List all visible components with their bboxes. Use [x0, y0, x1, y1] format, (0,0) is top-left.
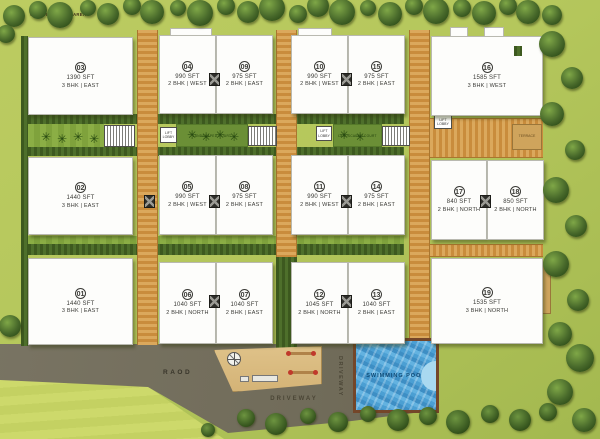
tree-icon — [123, 0, 141, 15]
unit-block-05: 05990 SFT2 BHK | WEST — [159, 155, 216, 235]
tree-icon — [289, 5, 307, 23]
staircase — [248, 126, 277, 146]
stairwell-marker — [144, 195, 155, 208]
tree-icon — [360, 0, 376, 16]
bush-icon — [446, 410, 470, 434]
tree-icon — [378, 2, 402, 26]
unit-block-09: 09975 SFT2 BHK | EAST — [216, 35, 273, 114]
tree-icon — [540, 102, 564, 126]
palm-tree-icon: ✳ — [200, 131, 212, 143]
unit-number: 03 — [75, 62, 86, 73]
unit-type-facing: 2 BHK | EAST — [358, 202, 395, 209]
unit-block-15: 15975 SFT2 BHK | EAST — [348, 35, 405, 114]
swimming-pool-label: SWIMMING POOL — [366, 373, 425, 379]
tree-icon — [561, 67, 583, 89]
unit-type-facing: 2 BHK | WEST — [168, 202, 207, 209]
unit-number: 07 — [239, 289, 250, 300]
unit-area: 975 SFT — [232, 74, 256, 82]
lift-lobby: LIFT LOBBY — [316, 126, 332, 141]
unit-number: 11 — [314, 181, 325, 192]
unit-area: 975 SFT — [364, 74, 388, 82]
tree-icon — [548, 322, 572, 346]
unit-type-facing: 2 BHK | NORTH — [298, 310, 340, 317]
unit-block-08: 08975 SFT2 BHK | EAST — [216, 155, 273, 235]
tree-icon — [565, 140, 585, 160]
unit-type-facing: 2 BHK | WEST — [168, 81, 207, 88]
tree-icon — [80, 0, 96, 16]
staircase — [382, 126, 410, 146]
unit-area: 1535 SFT — [473, 300, 501, 308]
unit-type-facing: 2 BHK | NORTH — [166, 310, 208, 317]
unit-block-19: 191535 SFT3 BHK | NORTH — [431, 258, 543, 344]
tree-icon — [566, 344, 594, 372]
hedge-strip — [28, 114, 404, 124]
bush-icon — [265, 413, 287, 435]
unit-type-facing: 2 BHK | WEST — [300, 81, 339, 88]
unit-area: 975 SFT — [364, 194, 388, 202]
swimming-pool: SWIMMING POOL — [353, 338, 439, 413]
stairwell-marker — [341, 195, 352, 208]
unit-type-facing: 2 BHK | EAST — [226, 81, 263, 88]
unit-number: 10 — [314, 61, 325, 72]
tree-icon — [542, 5, 562, 25]
unit-area: 975 SFT — [232, 194, 256, 202]
tree-icon — [472, 1, 496, 25]
tree-icon — [539, 31, 565, 57]
bush-icon — [360, 406, 376, 422]
tree-icon — [0, 315, 21, 337]
unit-area: 990 SFT — [307, 194, 331, 202]
lawn-strip — [28, 236, 404, 244]
unit-type-facing: 2 BHK | EAST — [226, 202, 263, 209]
unit-type-facing: 3 BHK | EAST — [62, 308, 99, 315]
bush-icon — [237, 409, 255, 427]
unit-number: 19 — [482, 287, 493, 298]
tree-icon — [572, 408, 596, 432]
tree-icon — [423, 0, 449, 24]
palm-tree-icon: ✳ — [56, 133, 68, 145]
unit-block-03: 031390 SFT3 BHK | EAST — [28, 37, 133, 115]
lift-lobby: LIFT LOBBY — [434, 115, 452, 129]
tree-icon — [547, 379, 573, 405]
merry-go-round-icon — [227, 352, 241, 366]
stairwell-marker — [209, 295, 220, 308]
tree-icon — [47, 2, 73, 28]
tree-icon — [329, 0, 355, 25]
unit-area: 990 SFT — [307, 74, 331, 82]
unit-number: 15 — [371, 61, 382, 72]
unit-area: 1390 SFT — [67, 75, 95, 83]
tree-icon — [405, 0, 423, 15]
tree-icon — [499, 0, 517, 15]
unit-type-facing: 2 BHK | WEST — [300, 202, 339, 209]
tree-icon — [140, 0, 164, 24]
bush-icon — [419, 407, 437, 425]
walkway — [409, 30, 430, 348]
palm-tree-icon: ✳ — [88, 133, 100, 145]
unit-block-01: 011440 SFT3 BHK | EAST — [28, 258, 133, 345]
unit-area: 1585 SFT — [473, 75, 501, 83]
unit-type-facing: 2 BHK | NORTH — [438, 207, 480, 214]
tree-icon — [217, 0, 235, 15]
tree-icon — [453, 0, 471, 17]
unit-type-facing: 3 BHK | WEST — [468, 83, 507, 90]
play-equipment-icon — [240, 376, 249, 382]
unit-block-17: 17840 SFT2 BHK | NORTH — [431, 160, 487, 240]
play-equipment-icon — [252, 375, 278, 382]
stairwell-marker — [341, 73, 352, 86]
tree-icon — [3, 5, 25, 27]
unit-type-facing: 2 BHK | NORTH — [494, 207, 536, 214]
see-saw-icon — [290, 371, 316, 374]
tree-icon — [516, 0, 540, 24]
stairwell-marker — [341, 295, 352, 308]
tree-icon — [259, 0, 285, 21]
bush-icon — [300, 408, 316, 424]
bush-icon — [539, 403, 557, 421]
unit-area: 840 SFT — [447, 199, 471, 207]
unit-block-10: 10990 SFT2 BHK | WEST — [291, 35, 348, 114]
unit-number: 09 — [239, 61, 250, 72]
unit-number: 17 — [454, 186, 465, 197]
unit-area: 990 SFT — [175, 74, 199, 82]
staircase — [104, 125, 135, 147]
bush-icon — [509, 409, 531, 431]
terrace: TERRACE — [512, 124, 542, 150]
unit-number: 12 — [314, 289, 325, 300]
tree-icon — [170, 0, 186, 16]
unit-number: 04 — [182, 61, 193, 72]
unit-area: 1040 SFT — [231, 302, 259, 310]
tree-icon — [565, 215, 587, 237]
walkway — [137, 30, 158, 345]
unit-number: 06 — [182, 289, 193, 300]
unit-block-11: 11990 SFT2 BHK | WEST — [291, 155, 348, 235]
see-saw-icon — [288, 352, 314, 355]
tree-icon — [97, 3, 119, 25]
unit-number: 02 — [75, 182, 86, 193]
unit-number: 14 — [371, 181, 382, 192]
unit-number: 05 — [182, 181, 193, 192]
unit-area: 1040 SFT — [174, 302, 202, 310]
tree-icon — [543, 251, 569, 277]
hedge-strip — [514, 46, 522, 56]
stairwell-marker — [209, 195, 220, 208]
palm-tree-icon: ✳ — [186, 129, 198, 141]
unit-block-04: 04990 SFT2 BHK | WEST — [159, 35, 216, 114]
unit-area: 1040 SFT — [363, 302, 391, 310]
unit-area: 990 SFT — [175, 194, 199, 202]
unit-area: 1045 SFT — [306, 302, 334, 310]
unit-type-facing: 3 BHK | EAST — [62, 203, 99, 210]
unit-type-facing: 2 BHK | EAST — [358, 310, 395, 317]
bush-icon — [387, 409, 409, 431]
unit-block-16: 161585 SFT3 BHK | WEST — [431, 36, 543, 116]
walkway — [430, 244, 543, 257]
unit-type-facing: 2 BHK | EAST — [358, 81, 395, 88]
unit-area: 1440 SFT — [67, 195, 95, 203]
unit-block-07: 071040 SFT2 BHK | EAST — [216, 262, 273, 344]
tree-icon — [543, 177, 569, 203]
unit-area: 850 SFT — [503, 199, 527, 207]
unit-number: 18 — [510, 186, 521, 197]
hedge-strip — [21, 36, 28, 346]
hedge-strip — [28, 244, 404, 255]
unit-number: 08 — [239, 181, 250, 192]
unit-block-06: 061040 SFT2 BHK | NORTH — [159, 262, 216, 344]
unit-number: 13 — [371, 289, 382, 300]
unit-number: 16 — [482, 62, 493, 73]
unit-block-02: 021440 SFT3 BHK | EAST — [28, 157, 133, 235]
unit-block-18: 18850 SFT2 BHK | NORTH — [487, 160, 544, 240]
palm-tree-icon: ✳ — [214, 129, 226, 141]
unit-block-14: 14975 SFT2 BHK | EAST — [348, 155, 405, 235]
tree-icon — [567, 289, 589, 311]
palm-tree-icon: ✳ — [354, 131, 366, 143]
lift-lobby: LIFT LOBBY — [160, 127, 177, 143]
unit-type-facing: 2 BHK | EAST — [226, 310, 263, 317]
unit-number: 01 — [75, 288, 86, 299]
palm-tree-icon: ✳ — [40, 131, 52, 143]
stairwell-marker — [480, 195, 491, 208]
road-label: RAOD — [163, 369, 211, 376]
unit-block-13: 131040 SFT2 BHK | EAST — [348, 262, 405, 344]
bush-icon — [328, 412, 348, 432]
site-plan: LANDSCAPED COURT LANDSCAPED COURT TERRAC… — [0, 0, 600, 439]
palm-tree-icon: ✳ — [338, 129, 350, 141]
unit-type-facing: 3 BHK | NORTH — [466, 308, 508, 315]
terrace-label: TERRACE — [519, 135, 536, 139]
unit-block-12: 121045 SFT2 BHK | NORTH — [291, 262, 348, 344]
palm-tree-icon: ✳ — [228, 131, 240, 143]
tree-icon — [29, 1, 47, 19]
palm-tree-icon: ✳ — [72, 131, 84, 143]
tree-icon — [237, 1, 259, 23]
driveway-horizontal-label: DRIVEWAY — [246, 396, 342, 402]
bush-icon — [481, 405, 499, 423]
tree-icon — [307, 0, 329, 17]
bush-icon — [201, 423, 215, 437]
pool-steps — [421, 361, 436, 391]
unit-type-facing: 3 BHK | EAST — [62, 83, 99, 90]
tree-icon — [187, 0, 213, 26]
tree-icon — [0, 25, 15, 43]
stairwell-marker — [209, 73, 220, 86]
unit-area: 1440 SFT — [67, 301, 95, 309]
